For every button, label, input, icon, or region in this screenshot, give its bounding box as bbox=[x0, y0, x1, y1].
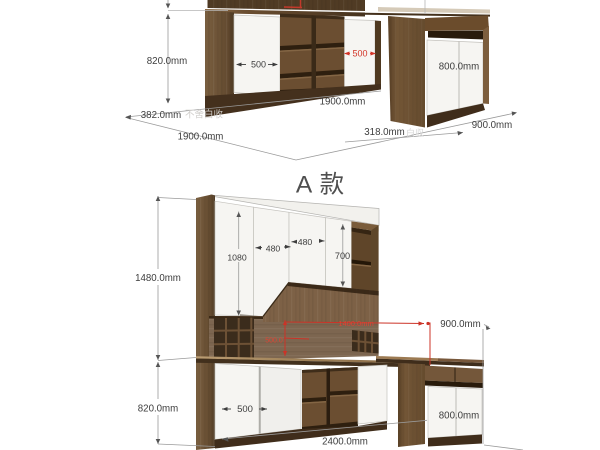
svg-text:2400.0mm: 2400.0mm bbox=[322, 437, 368, 448]
svg-text:900.0mm: 900.0mm bbox=[440, 319, 480, 330]
svg-text:700: 700 bbox=[335, 251, 350, 261]
svg-text:820.0mm: 820.0mm bbox=[147, 56, 187, 67]
svg-text:1900.0mm: 1900.0mm bbox=[320, 97, 366, 108]
svg-text:A 款: A 款 bbox=[296, 171, 345, 199]
svg-text:800.0mm: 800.0mm bbox=[439, 411, 479, 422]
svg-text:382.0mm: 382.0mm bbox=[141, 110, 181, 121]
svg-text:480: 480 bbox=[266, 244, 281, 254]
svg-text:1900.0mm: 1900.0mm bbox=[178, 132, 224, 143]
svg-text:1480.0mm: 1480.0mm bbox=[135, 273, 181, 284]
svg-text:1080: 1080 bbox=[227, 253, 246, 263]
svg-text:1400.0mm: 1400.0mm bbox=[338, 319, 373, 328]
svg-text:480: 480 bbox=[298, 237, 313, 247]
svg-text:318.0mm: 318.0mm bbox=[364, 127, 404, 138]
svg-text:500: 500 bbox=[251, 60, 266, 70]
svg-text:500: 500 bbox=[352, 49, 367, 59]
svg-text:900.0mm: 900.0mm bbox=[472, 120, 512, 131]
svg-text:500: 500 bbox=[237, 404, 253, 415]
svg-text:800.0mm: 800.0mm bbox=[439, 62, 479, 73]
svg-text:820.0mm: 820.0mm bbox=[138, 404, 178, 415]
svg-text:白収: 白収 bbox=[406, 127, 424, 138]
svg-text:不舍白收: 不舍白收 bbox=[185, 109, 224, 121]
svg-text:500.0: 500.0 bbox=[265, 338, 283, 345]
